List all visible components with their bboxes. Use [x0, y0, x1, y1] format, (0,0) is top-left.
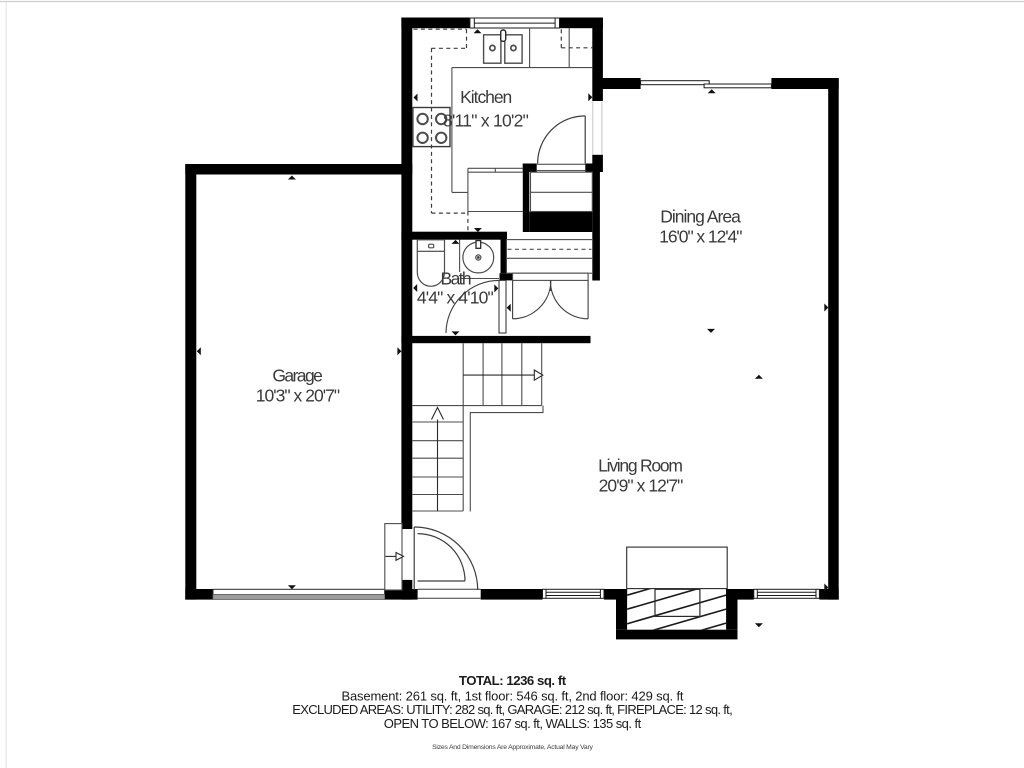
- svg-text:OPEN TO BELOW: 167 sq. ft, WAL: OPEN TO BELOW: 167 sq. ft, WALLS: 135 sq…: [384, 716, 642, 731]
- svg-text:Sizes And Dimensions Are Appro: Sizes And Dimensions Are Approximate, Ac…: [432, 744, 593, 751]
- svg-text:EXCLUDED AREAS: UTILITY: 282 s: EXCLUDED AREAS: UTILITY: 282 sq. ft, GAR…: [292, 702, 732, 717]
- svg-text:8'11" x 10'2": 8'11" x 10'2": [443, 110, 529, 130]
- svg-text:Living Room: Living Room: [598, 455, 683, 475]
- svg-text:16'0" x 12'4": 16'0" x 12'4": [659, 226, 742, 246]
- svg-text:Kitchen: Kitchen: [460, 87, 512, 107]
- svg-text:4'4" x 4'10": 4'4" x 4'10": [417, 287, 494, 307]
- svg-text:Dining Area: Dining Area: [660, 206, 741, 226]
- svg-text:Bath: Bath: [441, 268, 472, 288]
- svg-text:Garage: Garage: [272, 365, 323, 385]
- svg-text:10'3" x 20'7": 10'3" x 20'7": [256, 385, 340, 405]
- svg-text:Basement: 261 sq. ft, 1st floo: Basement: 261 sq. ft, 1st floor: 546 sq.…: [341, 688, 683, 703]
- svg-text:20'9" x 12'7": 20'9" x 12'7": [599, 475, 684, 495]
- svg-text:TOTAL: 1236 sq. ft: TOTAL: 1236 sq. ft: [459, 673, 567, 688]
